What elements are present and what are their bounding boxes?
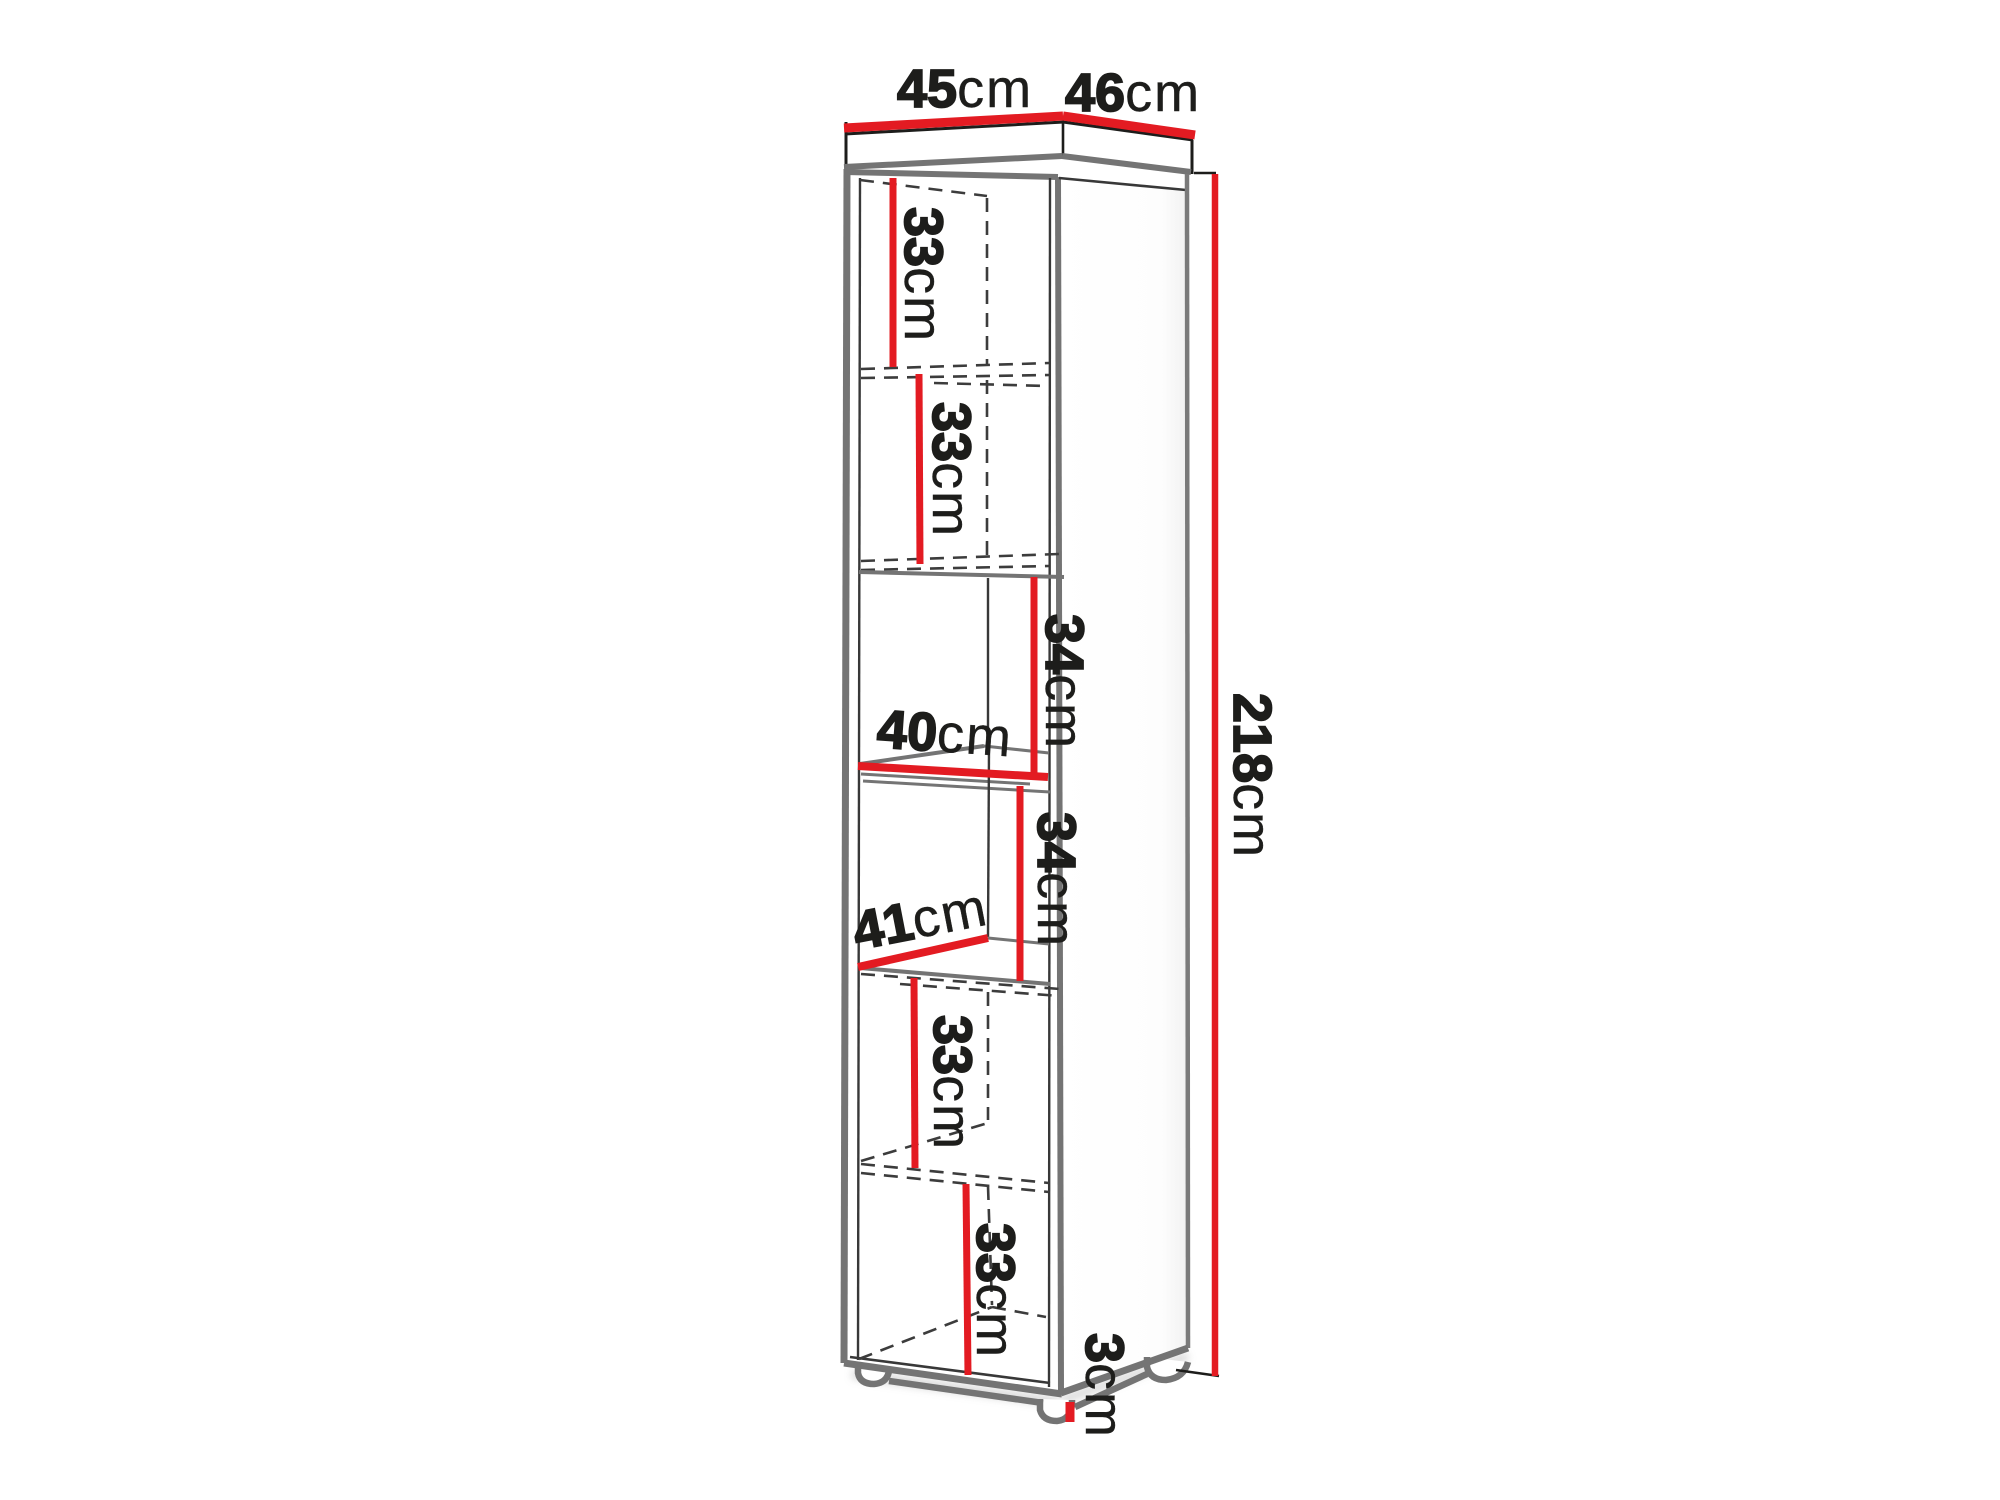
svg-text:33cm: 33cm — [965, 1223, 1025, 1359]
svg-text:34cm: 34cm — [1034, 614, 1094, 750]
svg-text:218cm: 218cm — [1222, 693, 1282, 859]
svg-text:33cm: 33cm — [922, 1015, 982, 1151]
svg-text:46cm: 46cm — [1065, 63, 1201, 123]
svg-text:40cm: 40cm — [875, 699, 1015, 768]
svg-text:45cm: 45cm — [897, 59, 1033, 119]
svg-text:33cm: 33cm — [921, 402, 981, 538]
svg-text:33cm: 33cm — [893, 207, 953, 343]
svg-text:34cm: 34cm — [1026, 812, 1086, 948]
svg-text:3cm: 3cm — [1074, 1333, 1134, 1439]
